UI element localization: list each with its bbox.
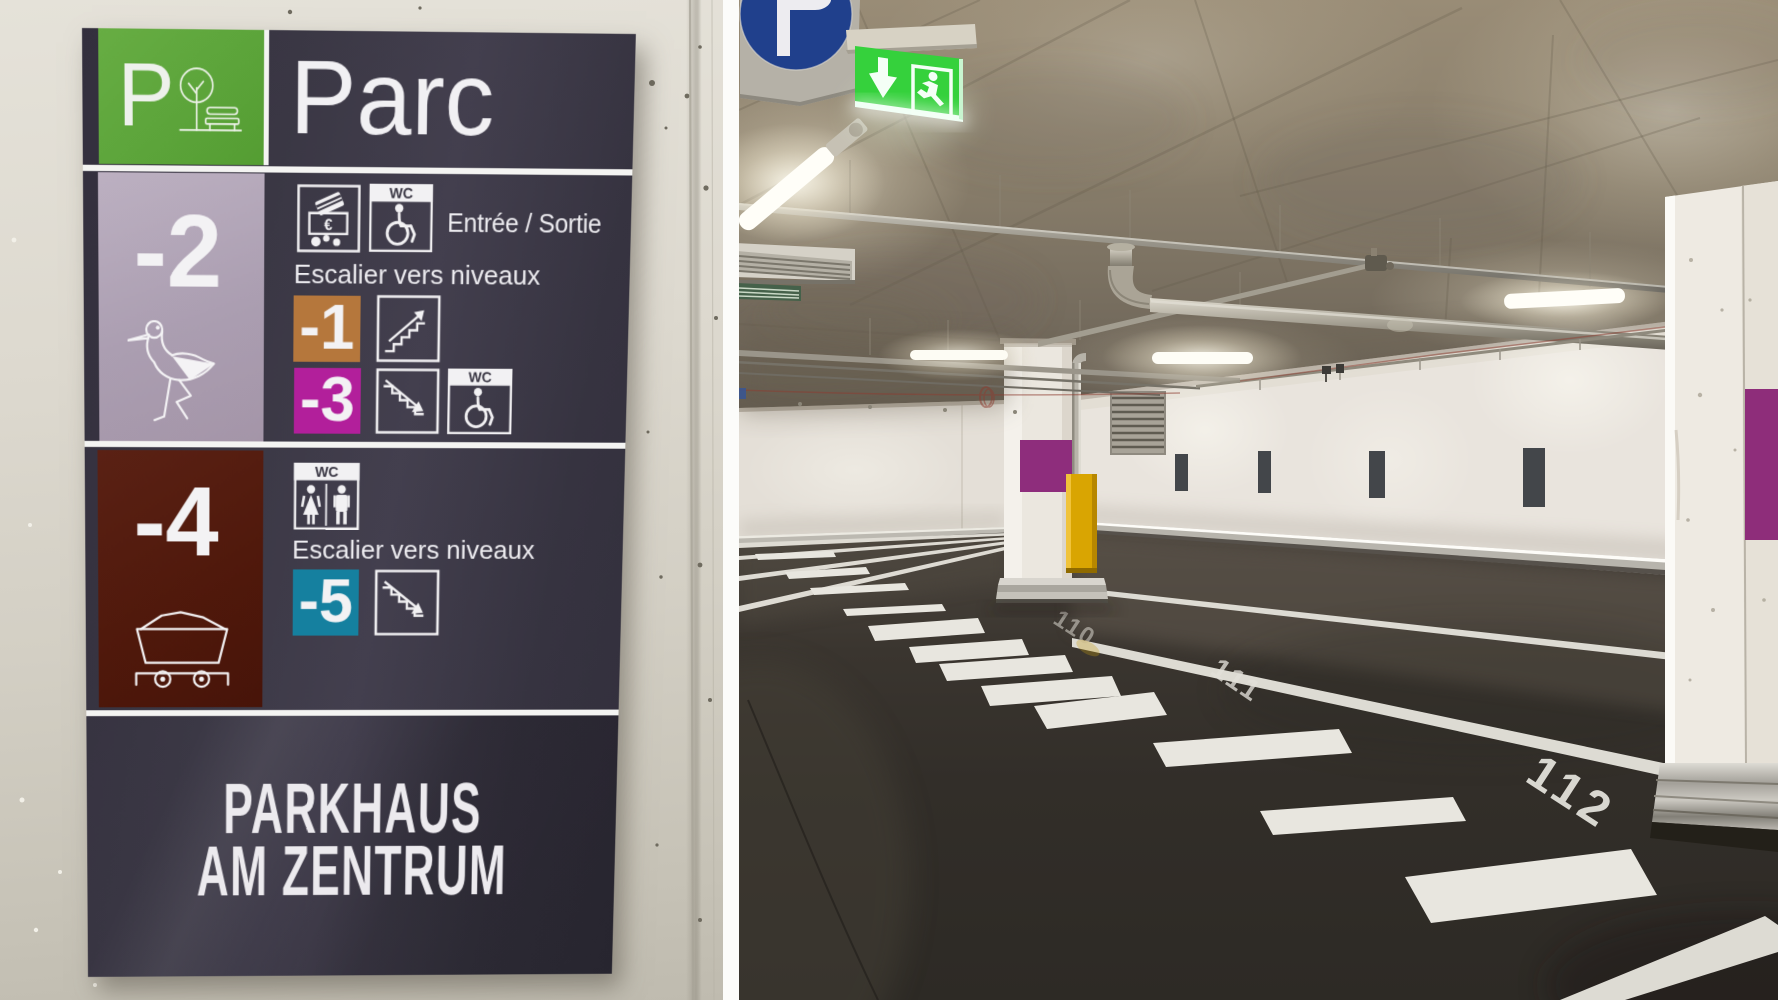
svg-text:WC: WC bbox=[315, 464, 339, 481]
svg-text:WC: WC bbox=[468, 370, 492, 386]
svg-text:WC: WC bbox=[389, 186, 413, 202]
svg-text:€: € bbox=[324, 217, 333, 234]
